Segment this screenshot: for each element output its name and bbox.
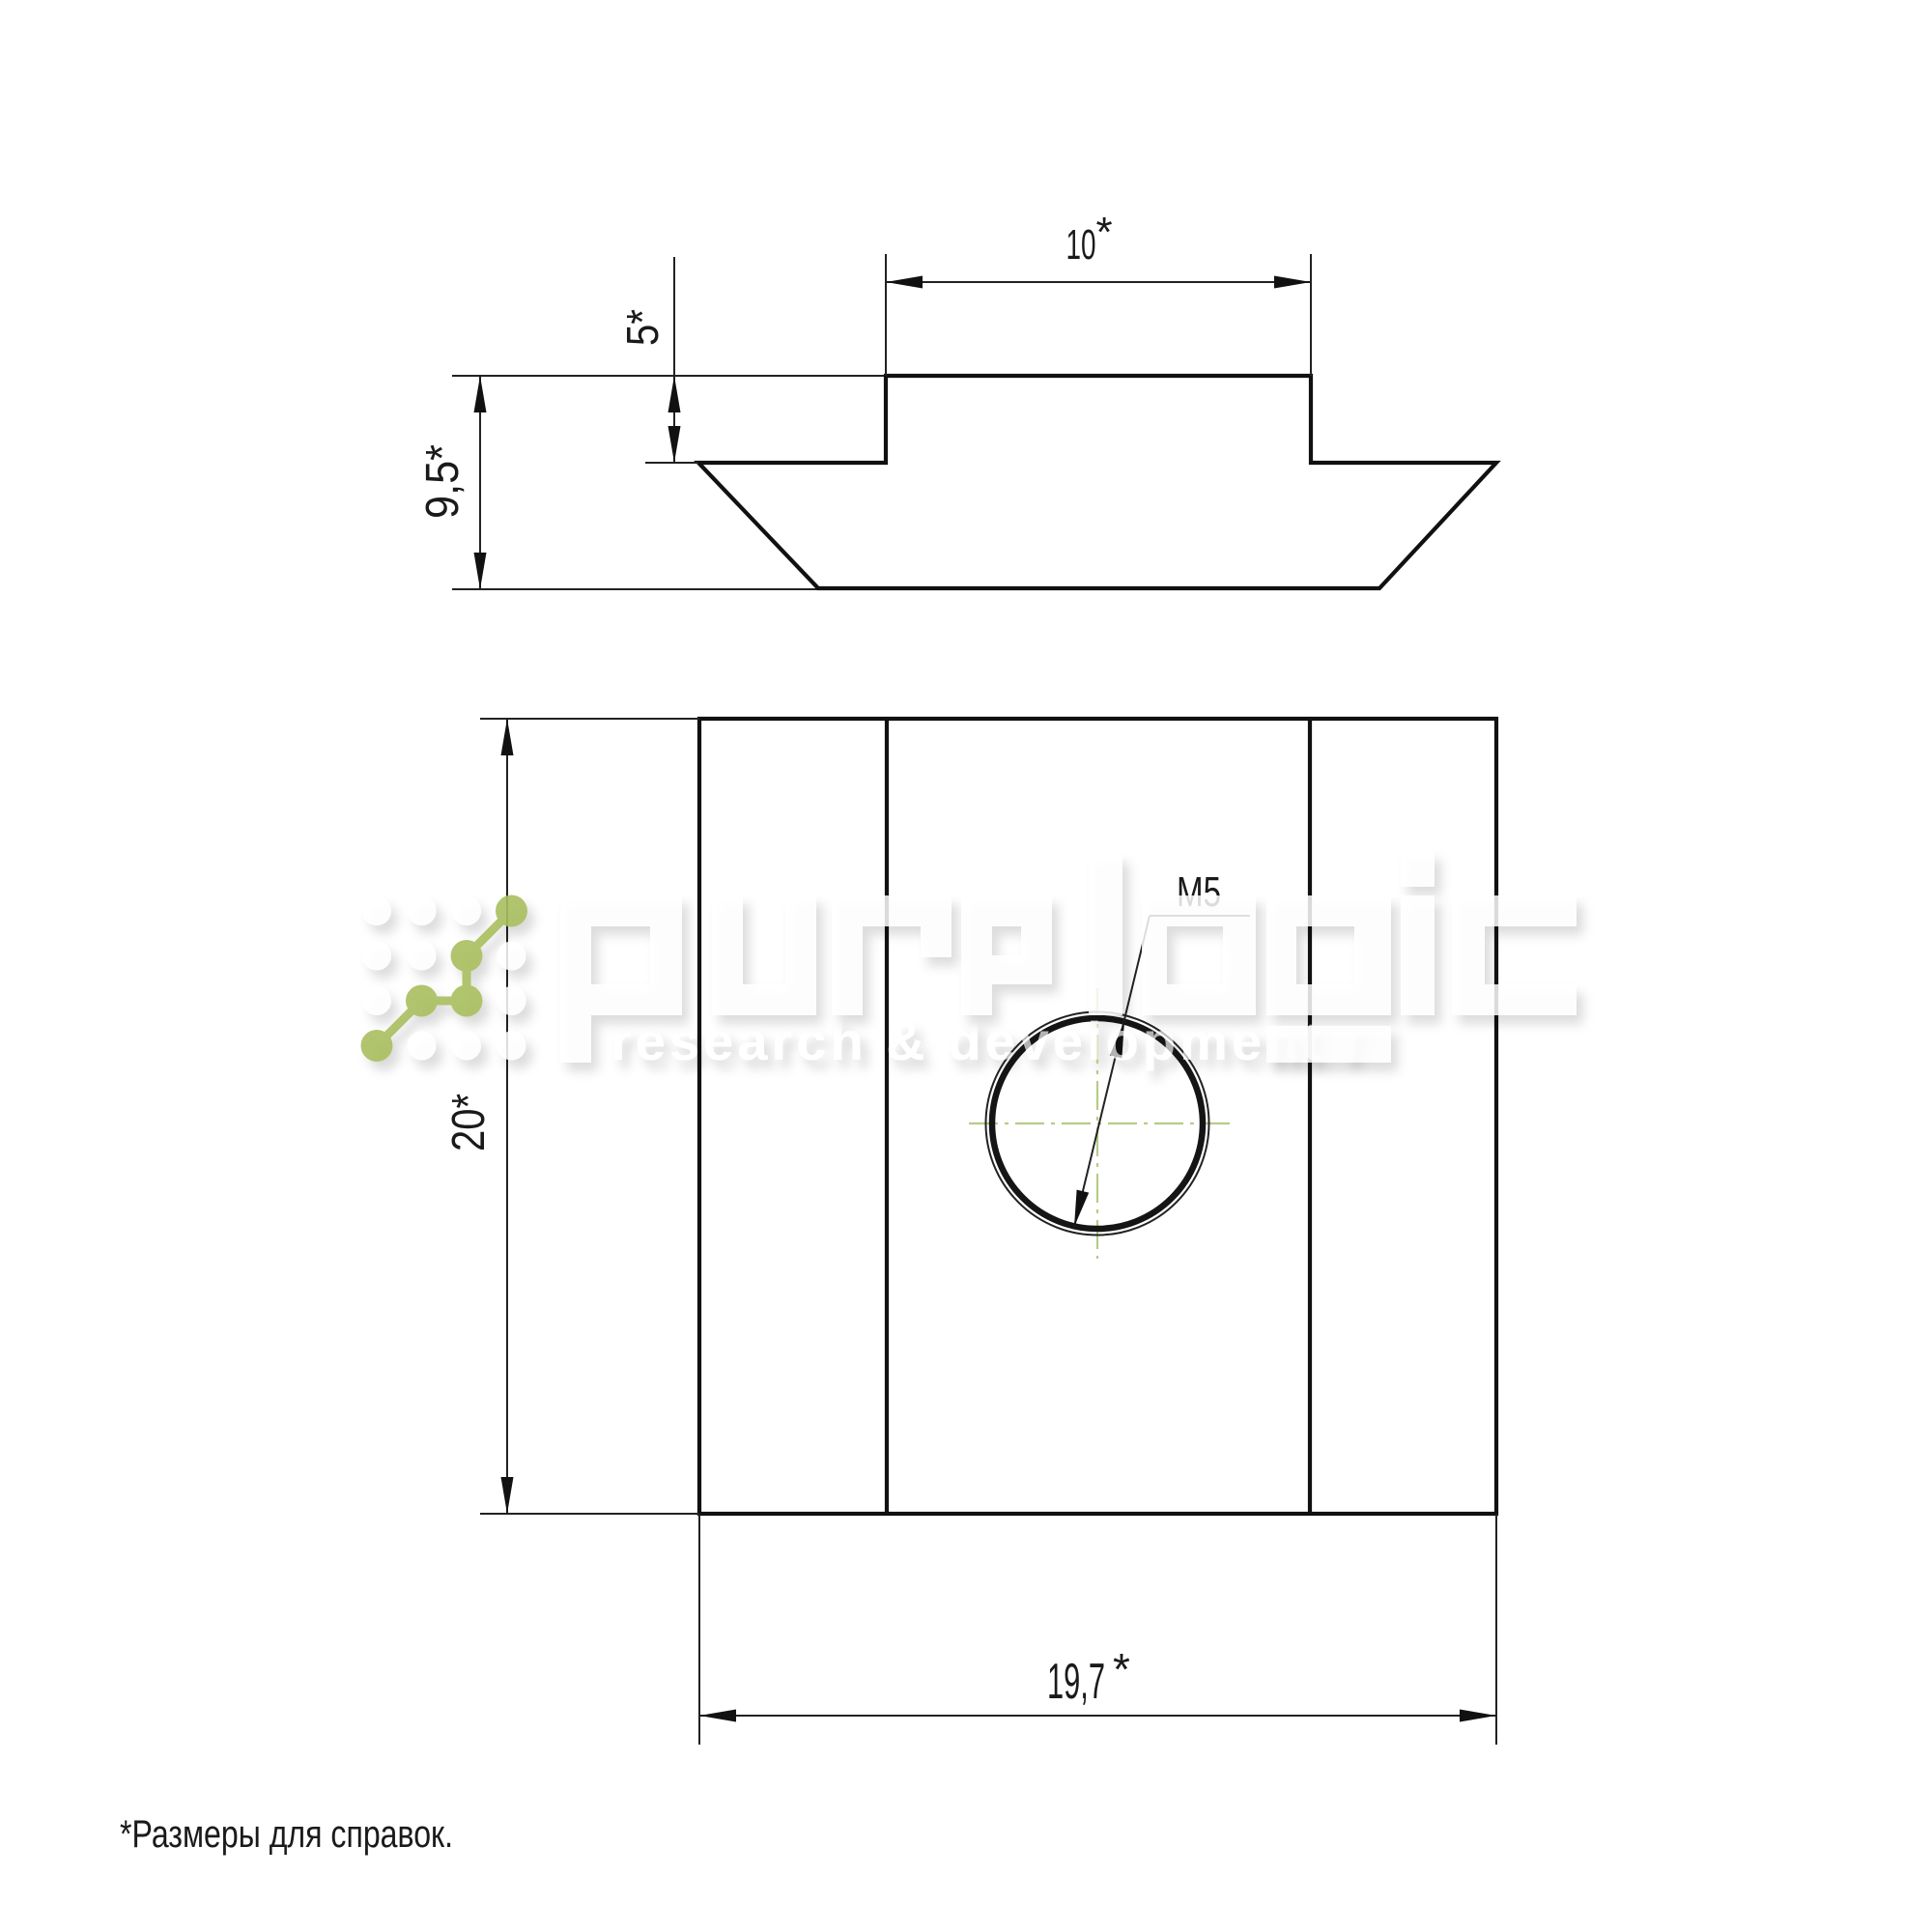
- svg-text:10: 10: [1066, 221, 1096, 269]
- svg-text:19,7: 19,7: [1047, 1654, 1105, 1710]
- svg-text:*: *: [1113, 1644, 1130, 1694]
- svg-text:20*: 20*: [443, 1094, 495, 1151]
- svg-text:9,5*: 9,5*: [417, 444, 469, 519]
- svg-text:*: *: [1095, 209, 1112, 256]
- svg-text:*Размеры для справок.: *Размеры для справок.: [120, 1813, 453, 1856]
- svg-text:research & development: research & development: [611, 1010, 1321, 1071]
- svg-text:5*: 5*: [617, 309, 668, 346]
